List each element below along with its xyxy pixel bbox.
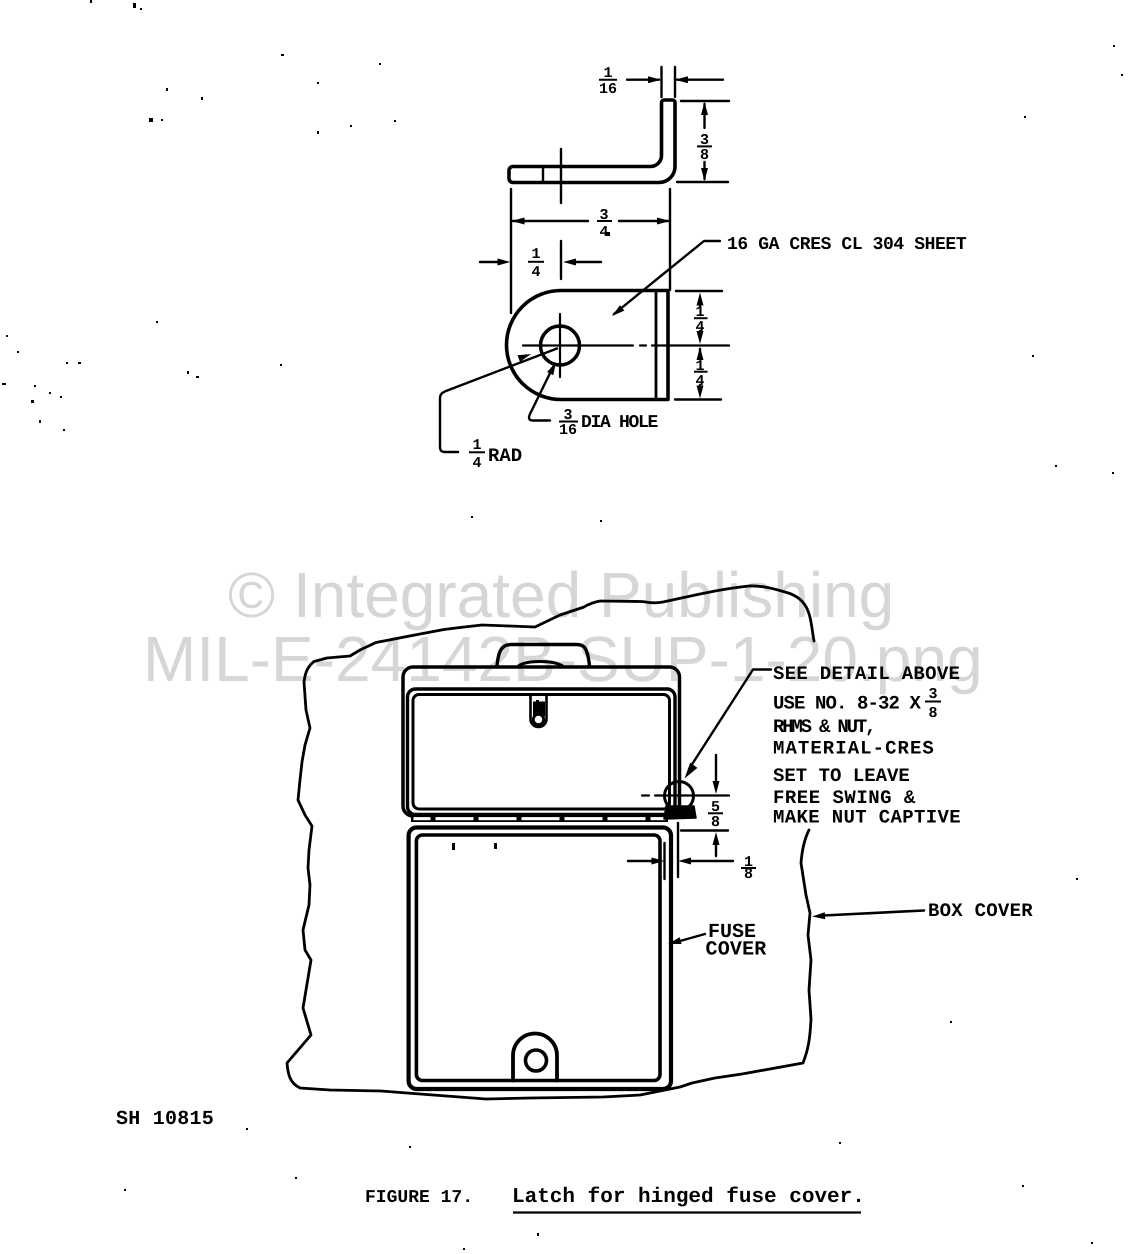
svg-text:16 GA CRES CL 304 SHEET: 16 GA CRES CL 304 SHEET [727, 235, 967, 255]
svg-text:8: 8 [928, 705, 937, 722]
svg-text:RAD: RAD [488, 445, 522, 467]
svg-text:COVER: COVER [706, 939, 767, 962]
svg-text:16: 16 [599, 81, 617, 98]
svg-text:DIA HOLE: DIA HOLE [581, 413, 659, 433]
svg-text:BOX COVER: BOX COVER [928, 900, 1033, 922]
svg-text:8: 8 [711, 814, 720, 831]
svg-text:MATERIAL-CRES: MATERIAL-CRES [773, 738, 935, 760]
svg-text:USE NO. 8-32 X: USE NO. 8-32 X [773, 693, 922, 715]
svg-text:8: 8 [700, 147, 709, 164]
svg-text:4: 4 [472, 455, 481, 472]
svg-text:3: 3 [928, 686, 937, 703]
svg-text:4: 4 [695, 373, 704, 390]
svg-text:SH 10815: SH 10815 [116, 1108, 214, 1131]
svg-text:SET TO LEAVE: SET TO LEAVE [773, 765, 910, 787]
svg-text:RHMS & NUT,: RHMS & NUT, [773, 716, 874, 738]
svg-text:MAKE NUT CAPTIVE: MAKE NUT CAPTIVE [773, 807, 961, 829]
svg-text:FIGURE 17.: FIGURE 17. [365, 1188, 473, 1208]
svg-text:SEE DETAIL ABOVE: SEE DETAIL ABOVE [773, 663, 960, 685]
svg-text:4: 4 [531, 264, 540, 281]
svg-text:16: 16 [559, 422, 577, 439]
svg-text:Latch for hinged fuse cover.: Latch for hinged fuse cover. [512, 1186, 865, 1209]
svg-text:4: 4 [695, 319, 704, 336]
svg-text:1: 1 [531, 246, 540, 263]
